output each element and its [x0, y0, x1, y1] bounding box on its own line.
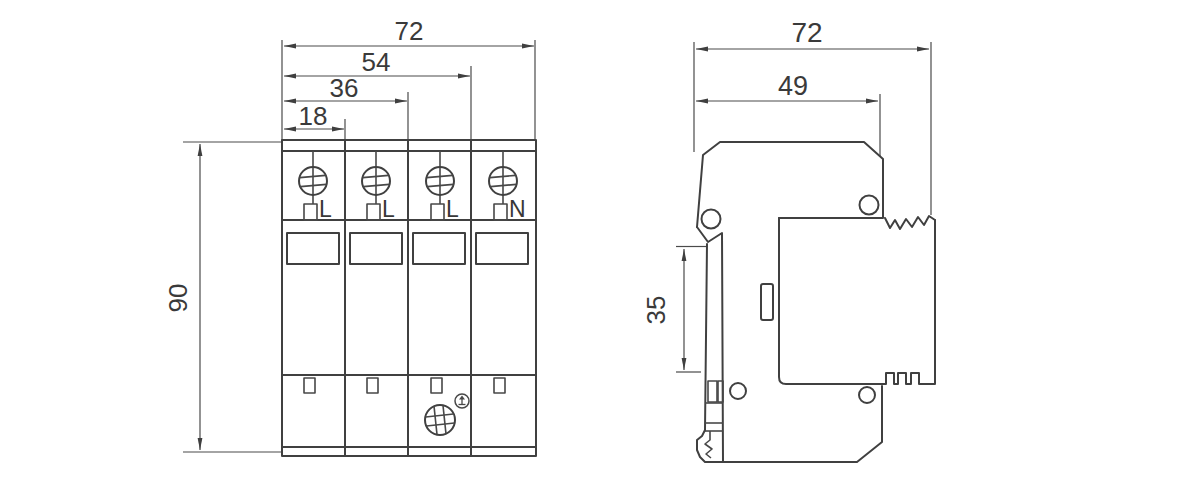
pe-screw-icon [425, 405, 456, 436]
terminal-label-1: L [319, 196, 332, 222]
dim-label-front-total-width: 72 [395, 16, 424, 46]
mounting-hole-icon [859, 387, 875, 403]
dim-label-front-height: 90 [163, 284, 193, 313]
label-window [287, 233, 339, 264]
bottom-notch [304, 378, 315, 393]
side-profile-body [779, 218, 935, 384]
dimensional-drawing: 72 54 36 18 90 L [0, 0, 1200, 481]
dim-label-side-body-depth: 49 [778, 71, 808, 101]
front-extension-lines [183, 40, 535, 452]
terminal-slot [367, 204, 380, 220]
label-window [350, 233, 402, 264]
front-module: N [476, 151, 528, 393]
mounting-hole-icon [702, 210, 721, 229]
bottom-notch [494, 378, 505, 393]
terminal-slot [304, 204, 317, 220]
terminal-slot [494, 204, 507, 220]
side-profile-flange [697, 142, 883, 227]
ground-symbol-icon [455, 394, 469, 408]
terminal-slot [431, 204, 444, 220]
mounting-hole-icon [860, 196, 879, 215]
din-rail-clip [697, 227, 723, 462]
terminal-label-2: L [382, 196, 395, 222]
front-module: L [413, 151, 469, 435]
dim-label-side-rail-height: 35 [641, 296, 671, 325]
dim-label-side-total-width: 72 [791, 17, 822, 48]
front-device-outline [282, 140, 536, 456]
dim-label-front-one-module: 18 [299, 101, 328, 131]
front-module: L [287, 151, 339, 393]
label-window [413, 233, 465, 264]
terminal-label-n: N [509, 196, 526, 222]
front-module: L [350, 151, 402, 393]
terminal-label-3: L [446, 196, 459, 222]
dim-label-front-two-modules: 36 [330, 73, 359, 103]
side-view: 72 49 35 [641, 17, 935, 462]
serrated-edge [885, 216, 935, 229]
dim-label-front-three-modules: 54 [362, 47, 391, 77]
side-tab [761, 284, 773, 320]
bottom-notch [367, 378, 378, 393]
front-view: 72 54 36 18 90 L [163, 16, 536, 456]
mounting-hole-icon [730, 383, 746, 399]
clip-spring [705, 431, 712, 458]
bottom-notch [431, 378, 442, 393]
drawing-canvas: 72 54 36 18 90 L [0, 0, 1200, 481]
side-profile-base [723, 386, 882, 462]
label-window [476, 233, 528, 264]
